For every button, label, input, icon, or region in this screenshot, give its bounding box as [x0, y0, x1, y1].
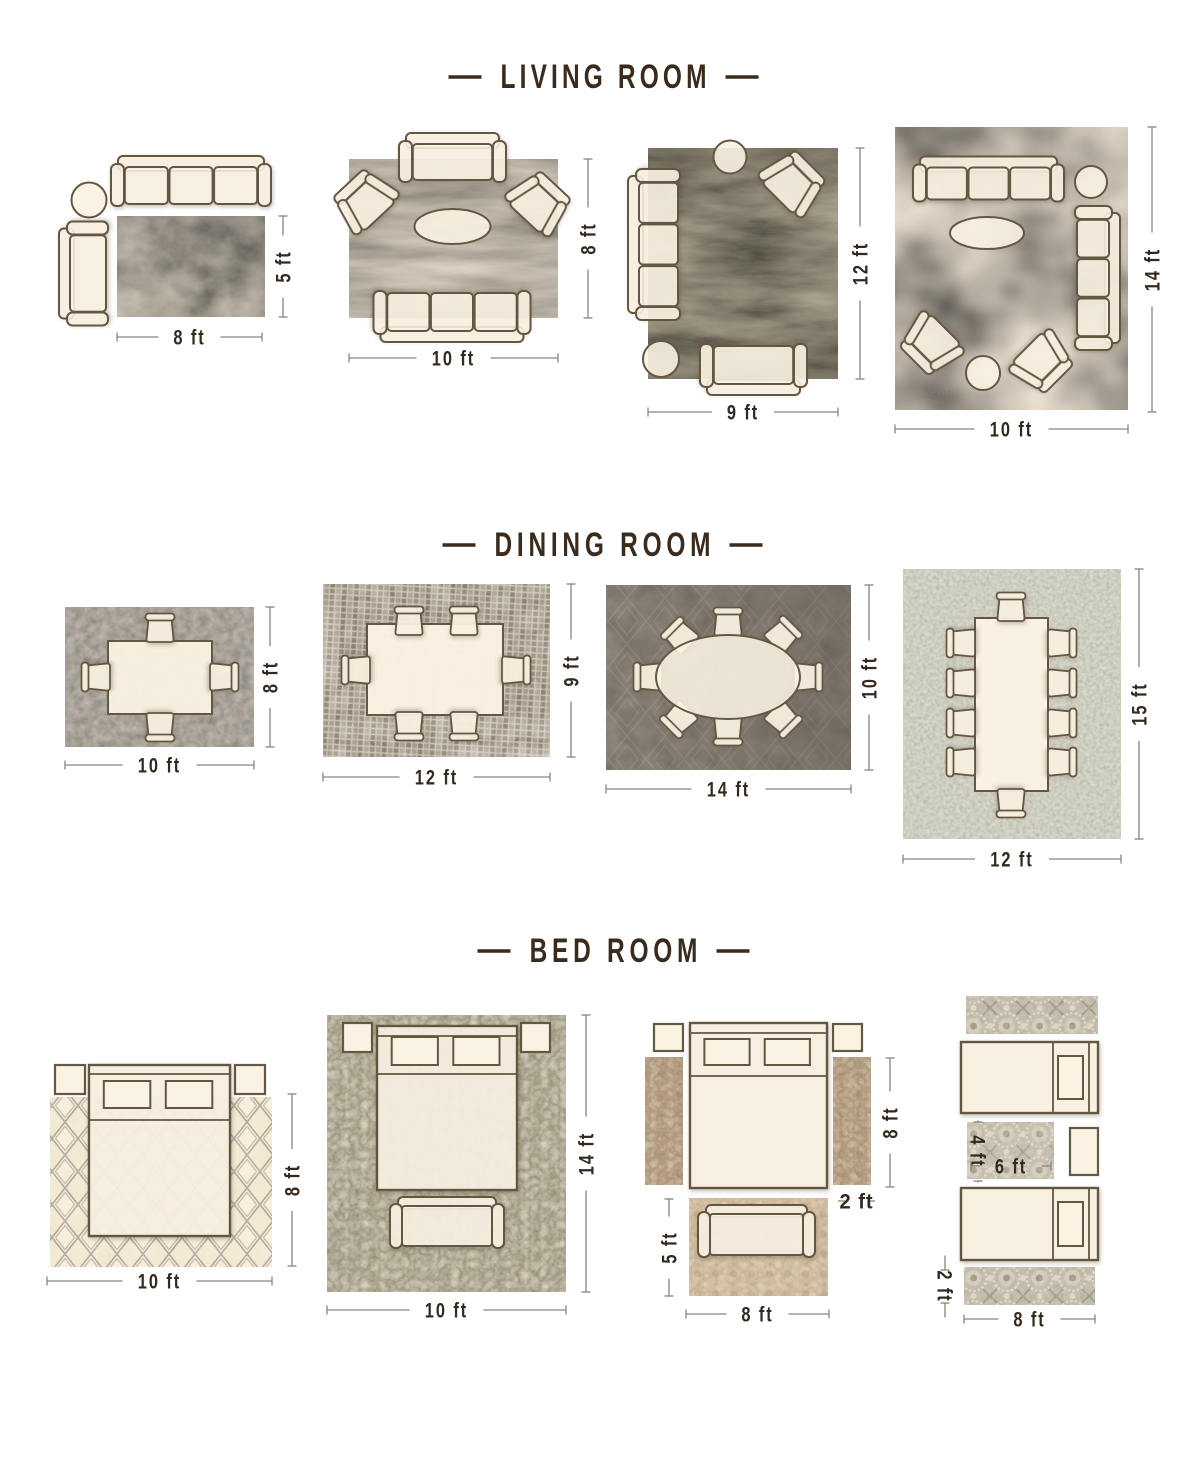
svg-text:9 ft: 9 ft [727, 401, 759, 424]
svg-text:9 ft: 9 ft [560, 654, 583, 686]
svg-text:5 ft: 5 ft [272, 250, 295, 282]
svg-text:8 ft: 8 ft [281, 1164, 304, 1196]
svg-text:2 ft: 2 ft [933, 1270, 956, 1302]
svg-text:10 ft: 10 ft [432, 347, 475, 370]
svg-text:15 ft: 15 ft [1128, 682, 1151, 725]
svg-text:14 ft: 14 ft [707, 778, 750, 801]
svg-text:12 ft: 12 ft [849, 242, 872, 285]
svg-text:8 ft: 8 ft [741, 1303, 773, 1326]
svg-text:8 ft: 8 ft [1013, 1308, 1045, 1331]
svg-text:10 ft: 10 ft [858, 656, 881, 699]
svg-text:5 ft: 5 ft [658, 1231, 681, 1263]
svg-text:12 ft: 12 ft [415, 766, 458, 789]
svg-text:10 ft: 10 ft [138, 754, 181, 777]
svg-text:8 ft: 8 ft [879, 1106, 902, 1138]
svg-text:6 ft: 6 ft [995, 1155, 1027, 1178]
svg-text:8 ft: 8 ft [577, 222, 600, 254]
svg-text:14 ft: 14 ft [575, 1132, 598, 1175]
svg-text:8 ft: 8 ft [173, 326, 205, 349]
svg-text:14 ft: 14 ft [1141, 248, 1164, 291]
svg-text:10 ft: 10 ft [425, 1299, 468, 1322]
svg-text:10 ft: 10 ft [138, 1270, 181, 1293]
svg-text:4 ft: 4 ft [966, 1135, 989, 1167]
svg-text:8 ft: 8 ft [259, 661, 282, 693]
svg-text:BED ROOM: BED ROOM [530, 932, 698, 970]
svg-text:12 ft: 12 ft [990, 848, 1033, 871]
svg-text:10 ft: 10 ft [990, 418, 1033, 441]
svg-text:2 ft: 2 ft [840, 1191, 874, 1214]
